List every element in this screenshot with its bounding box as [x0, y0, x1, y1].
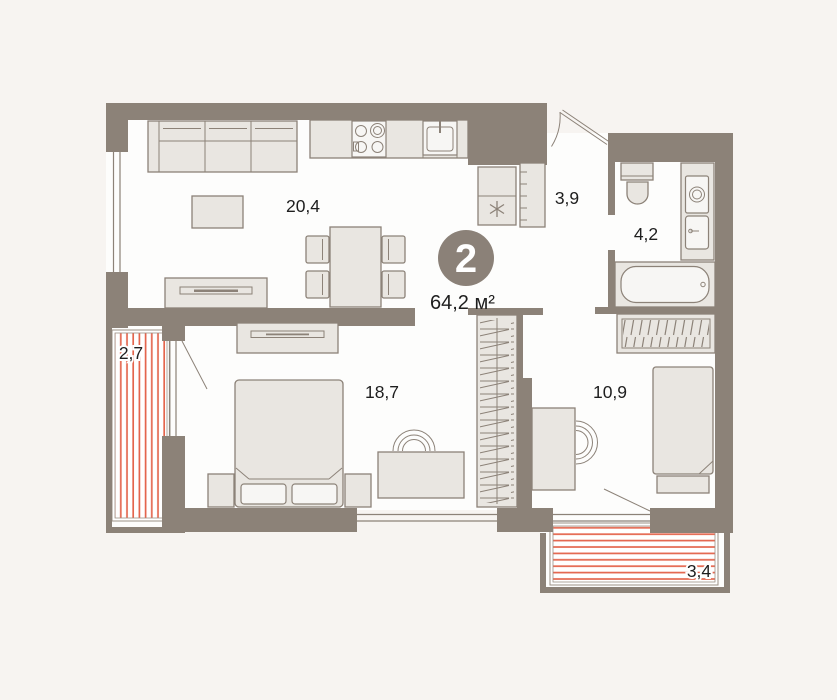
bathroom-sink-icon — [686, 216, 709, 249]
washer-sink-column — [681, 163, 714, 260]
bedroom-desk — [378, 452, 464, 498]
bedroom2-desk — [532, 408, 575, 490]
hanger-wardrobe — [617, 314, 715, 353]
double-bed — [235, 380, 343, 507]
room-label-bedroom2: 10,9 — [593, 382, 627, 402]
tv-stand — [165, 278, 267, 308]
room-label-bedroom: 18,7 — [365, 382, 399, 402]
stove-icon — [352, 121, 386, 157]
bathtub-icon — [615, 262, 715, 307]
room-label-bathroom: 4,2 — [634, 224, 658, 244]
badge-total-area: 64,2 м² — [430, 292, 495, 314]
kitchen-sink-icon — [423, 119, 457, 155]
badge-room-count: 2 — [455, 237, 477, 281]
floor-plan: 20,4 3,9 4,2 2,7 18,7 10,9 3,4 2 64,2 м² — [0, 0, 837, 700]
hall-shelf — [520, 163, 545, 227]
floor-plan-page: 20,4 3,9 4,2 2,7 18,7 10,9 3,4 2 64,2 м² — [0, 0, 837, 700]
room-label-hallway: 3,9 — [555, 188, 579, 208]
coffee-table — [192, 196, 243, 228]
room-label-living-kitchen: 20,4 — [286, 196, 320, 216]
room-label-balcony-left: 2,7 — [119, 343, 143, 363]
washing-machine-icon — [686, 176, 709, 213]
sofa — [148, 121, 297, 172]
room-label-balcony-bottom: 3,4 — [687, 561, 712, 581]
bedroom-window — [357, 515, 497, 522]
wardrobe — [477, 315, 517, 507]
single-bed — [653, 367, 713, 493]
bedroom-dresser — [237, 323, 338, 353]
dining-table — [330, 227, 381, 307]
fridge-icon — [478, 167, 516, 225]
